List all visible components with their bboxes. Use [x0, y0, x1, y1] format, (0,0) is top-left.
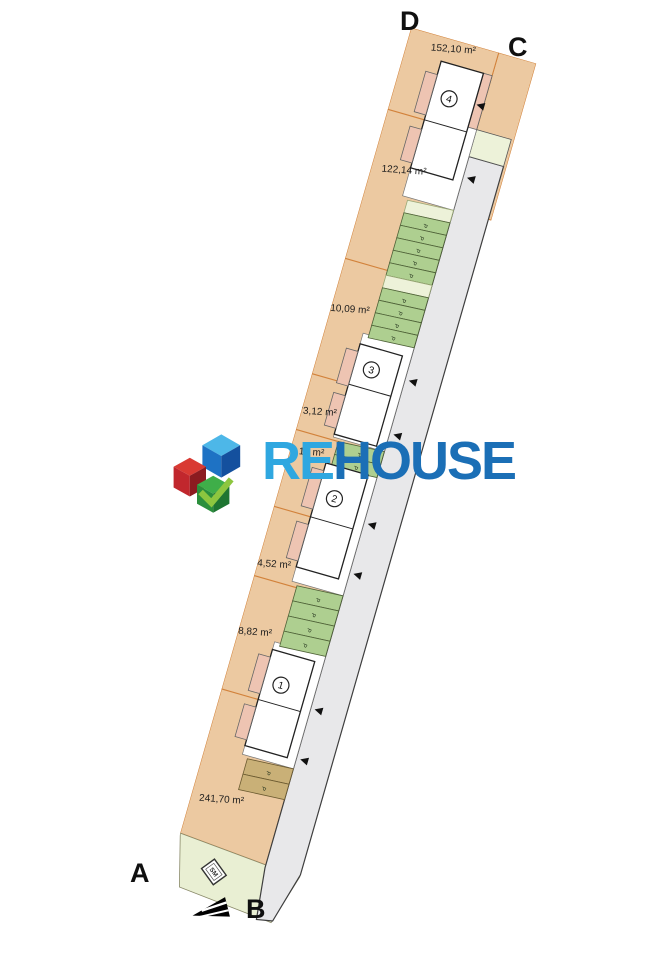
corner-label-b: B [246, 896, 266, 923]
site-plan-page: PPPPPPPPPPPPPPPPP 4 3 [0, 0, 656, 960]
rehouse-logo-cubes-icon [170, 428, 260, 520]
corner-label-d: D [400, 8, 420, 35]
area-label-118: 118,82 m² [227, 625, 273, 639]
rehouse-watermark: REHOUSE [170, 428, 515, 520]
brand-suffix: HOUSE [333, 431, 515, 491]
brand-prefix: RE [262, 431, 333, 491]
corner-label-a: A [130, 860, 150, 887]
corner-label-c: C [508, 34, 528, 61]
rehouse-logo-text: REHOUSE [262, 434, 515, 488]
